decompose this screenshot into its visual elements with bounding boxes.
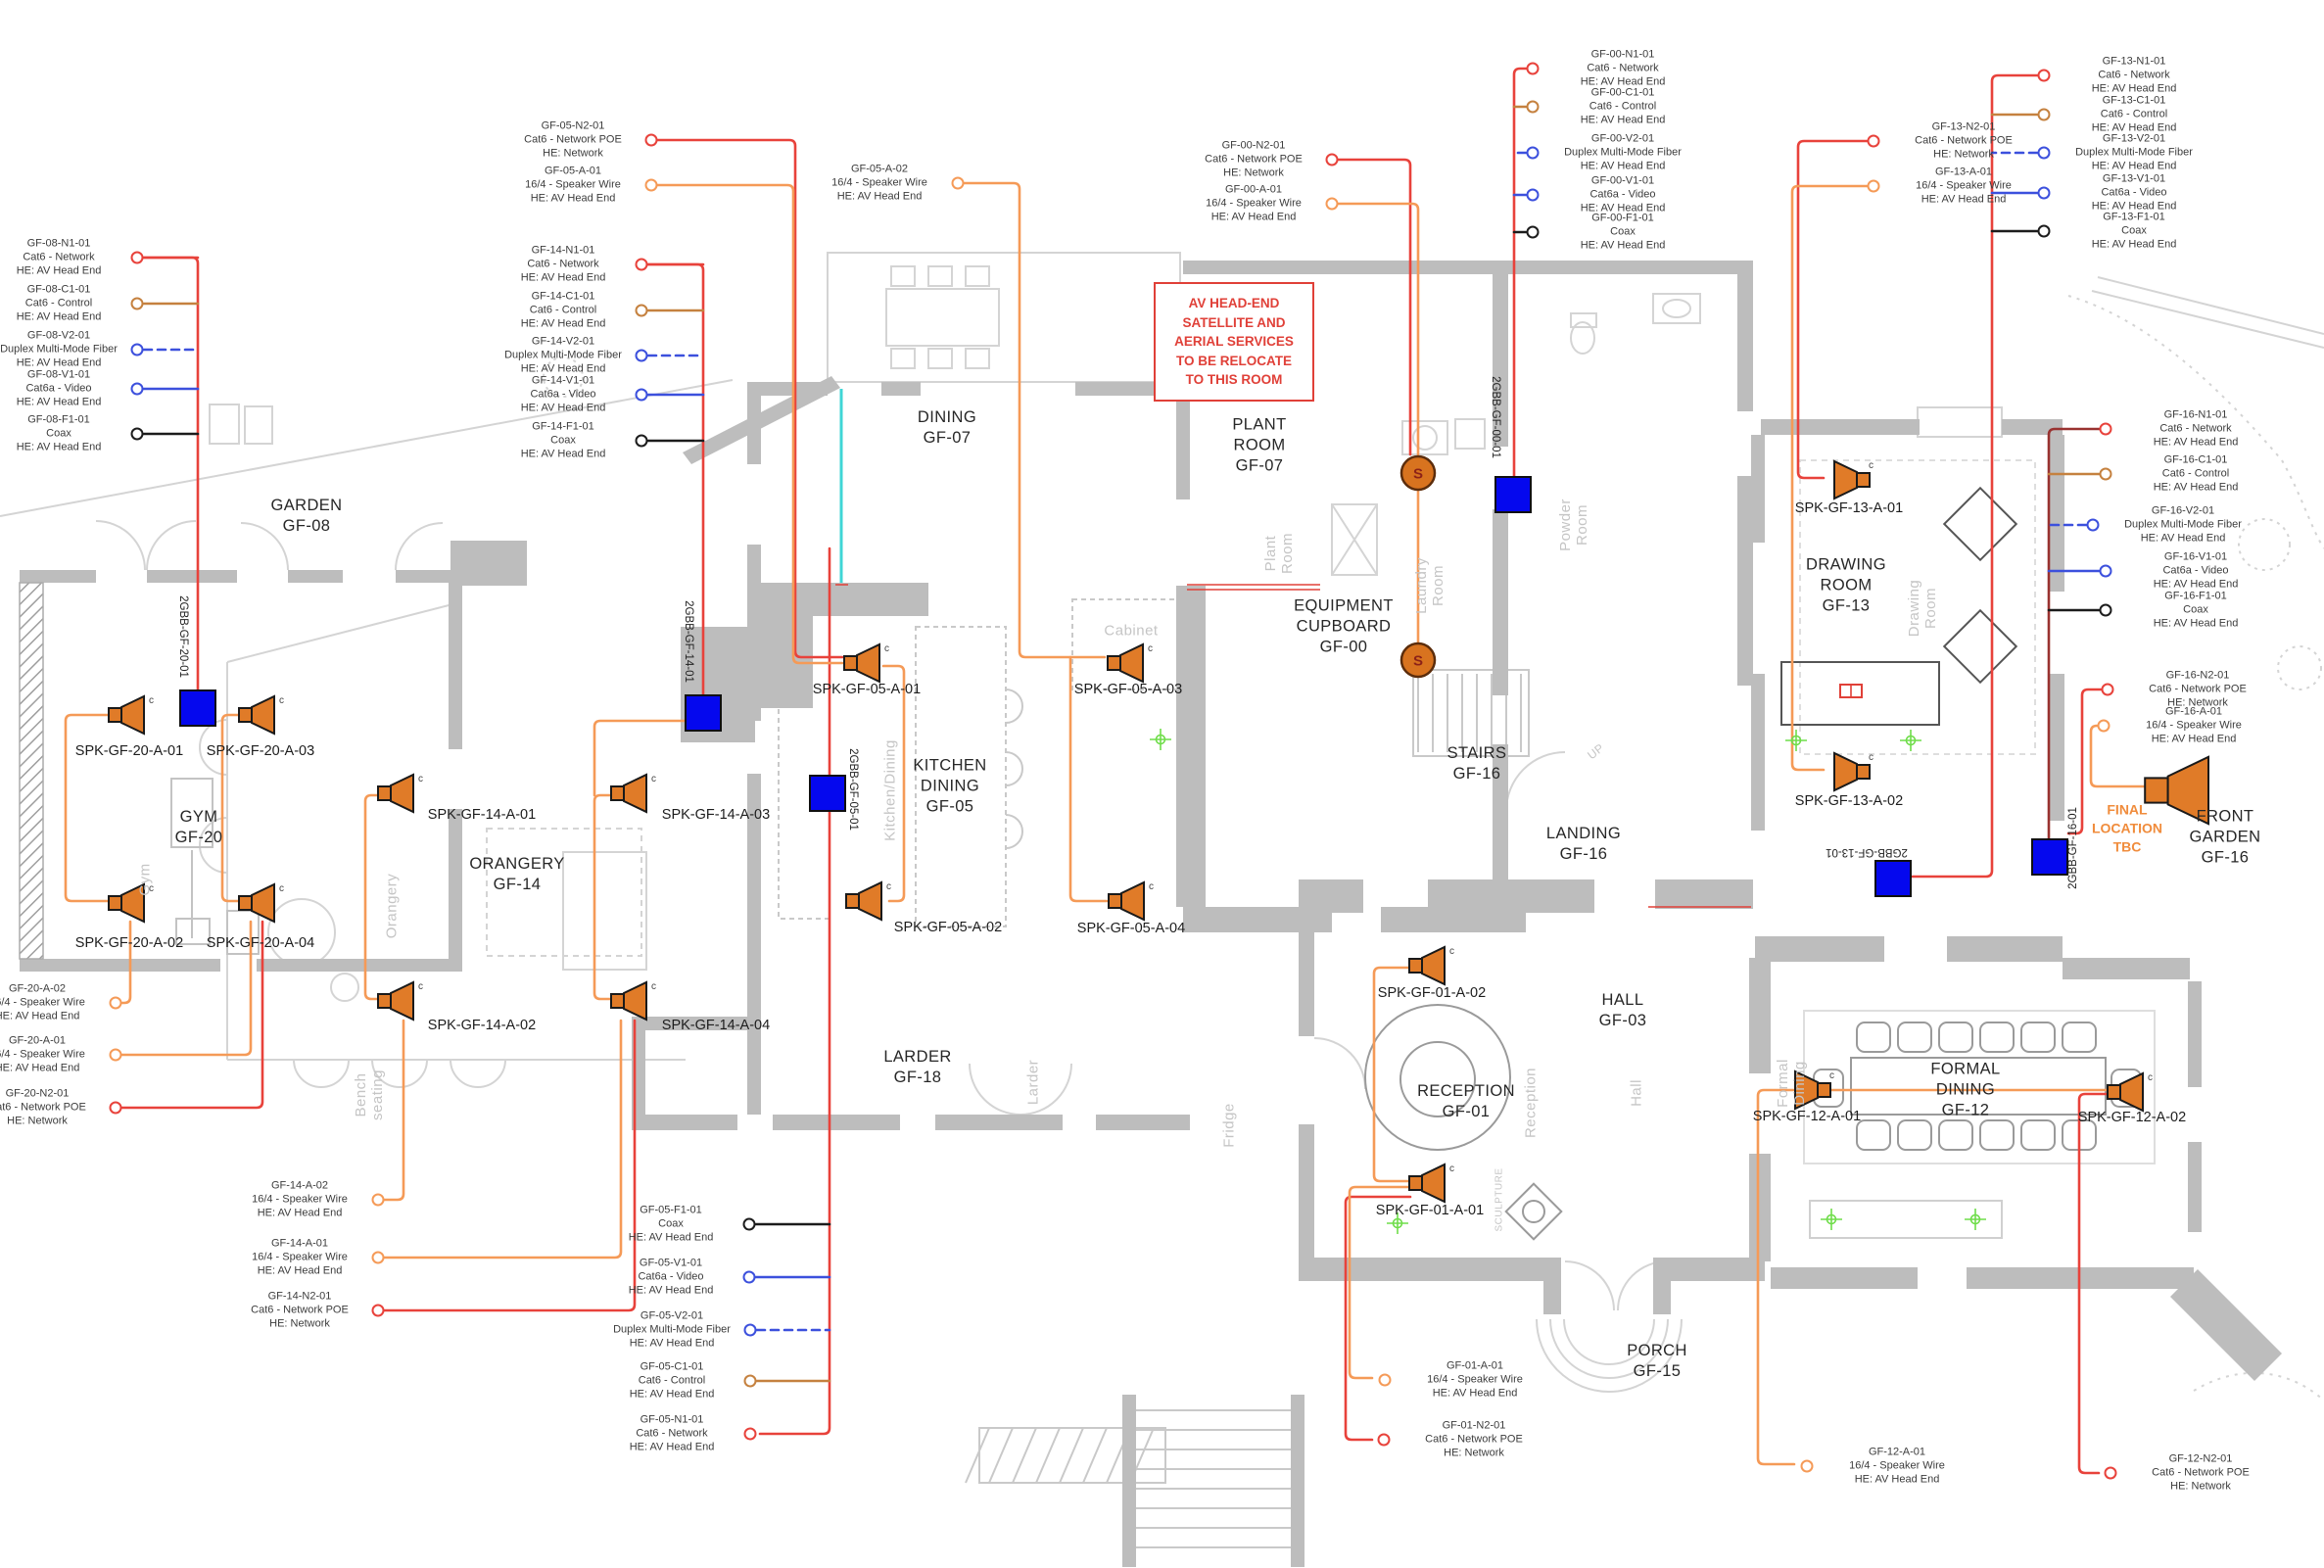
arch-label-line: Kitchen/Dining xyxy=(881,739,898,841)
speaker-label-SPK-GF-12-A-01: SPK-GF-12-A-01 xyxy=(1753,1109,1861,1124)
arch-label: SCULPTURE xyxy=(1494,1167,1505,1231)
speaker-label-text: SPK-GF-20-A-02 xyxy=(75,935,183,951)
room-label-kitchen-dining: KITCHENDININGGF-05 xyxy=(913,755,986,817)
callout-headend: HE: AV Head End xyxy=(593,1284,749,1297)
callout-id: GF-05-N1-01 xyxy=(593,1413,750,1426)
callout-id: GF-12-N2-01 xyxy=(2122,1452,2279,1465)
room-label-line: DINING xyxy=(918,407,976,428)
cable-callout-GF-00-C1-01: GF-00-C1-01Cat6 - ControlHE: AV Head End xyxy=(1544,86,1701,126)
arch-label-line: Fridge xyxy=(1220,1103,1237,1148)
callout-id: GF-16-N1-01 xyxy=(2117,408,2274,421)
backbox-label-2GBB-GF-14-01: 2GBB-GF-14-01 xyxy=(683,600,694,683)
cable-callout-GF-05-N1-01: GF-05-N1-01Cat6 - NetworkHE: AV Head End xyxy=(593,1413,750,1453)
speaker-label-text: SPK-GF-14-A-04 xyxy=(662,1018,770,1033)
cable-terminal-GF-12-N2-01 xyxy=(2105,1467,2117,1480)
callout-cable-type: Cat6a - Video xyxy=(1544,189,1701,202)
arch-label-line: Bench xyxy=(353,1069,369,1120)
cable-terminal-GF-13-N2-01 xyxy=(1868,135,1880,148)
callout-headend: HE: Network xyxy=(2122,1480,2279,1493)
speaker-label-SPK-GF-05-A-03: SPK-GF-05-A-03 xyxy=(1074,682,1182,697)
callout-cable-type: 16/4 - Speaker Wire xyxy=(2115,720,2272,733)
room-label-drawing-room: DRAWINGROOMGF-13 xyxy=(1806,554,1886,616)
arch-label: Benchseating xyxy=(353,1069,387,1120)
callout-cable-type: Coax xyxy=(1544,226,1701,239)
callout-headend: HE: AV Head End xyxy=(221,1264,378,1277)
callout-id: GF-13-C1-01 xyxy=(2056,94,2212,107)
final-location-line: LOCATION xyxy=(2092,820,2162,838)
callout-id: GF-14-A-01 xyxy=(221,1237,378,1250)
speaker-label-SPK-GF-14-A-03: SPK-GF-14-A-03 xyxy=(662,807,770,823)
room-label-line: GF-20 xyxy=(175,828,223,848)
speaker-label-text: SPK-GF-05-A-01 xyxy=(813,682,921,697)
room-label-line: CUPBOARD xyxy=(1294,616,1394,637)
cable-terminal-GF-00-C1-01 xyxy=(1527,101,1540,114)
room-label-line: LANDING xyxy=(1546,824,1621,844)
arch-label-line: Room xyxy=(1430,557,1447,614)
arch-label: PowderRoom xyxy=(1557,499,1591,551)
callout-headend: HE: AV Head End xyxy=(593,1441,750,1453)
speaker-label-SPK-GF-13-A-01: SPK-GF-13-A-01 xyxy=(1795,500,1903,516)
room-label-line: GF-16 xyxy=(1546,844,1621,865)
callout-headend: HE: AV Head End xyxy=(2056,160,2212,172)
callout-id: GF-16-N2-01 xyxy=(2119,669,2276,682)
callout-id: GF-08-C1-01 xyxy=(0,283,137,296)
backbox-label-text: 2GBB-GF-20-01 xyxy=(177,595,189,678)
callout-cable-type: Cat6 - Network POE xyxy=(495,134,651,147)
callout-headend: HE: AV Head End xyxy=(593,1337,750,1350)
cable-callout-GF-05-V1-01: GF-05-V1-01Cat6a - VideoHE: AV Head End xyxy=(593,1257,749,1297)
arch-label-line: Orangery xyxy=(383,874,400,939)
room-label-plant-room: PLANTROOMGF-07 xyxy=(1232,414,1286,476)
cable-terminal-GF-00-F1-01 xyxy=(1527,226,1540,239)
relocation-note-line: AV HEAD-END xyxy=(1160,294,1308,313)
callout-headend: HE: AV Head End xyxy=(801,190,958,203)
arch-label-line: Gym xyxy=(136,863,153,895)
callout-cable-type: Cat6a - Video xyxy=(485,389,641,402)
arch-label-line: Room xyxy=(1922,580,1939,638)
cable-callout-GF-13-N1-01: GF-13-N1-01Cat6 - NetworkHE: AV Head End xyxy=(2056,55,2212,95)
room-label-line: STAIRS xyxy=(1447,743,1507,764)
callout-headend: HE: AV Head End xyxy=(0,1010,116,1022)
cable-terminal-GF-01-N2-01 xyxy=(1378,1434,1391,1447)
callout-headend: HE: AV Head End xyxy=(485,402,641,414)
cable-terminal-GF-16-F1-01 xyxy=(2100,604,2112,617)
arch-label: Cabinet xyxy=(1104,622,1158,639)
callout-id: GF-13-V2-01 xyxy=(2056,132,2212,145)
speaker-label-text: SPK-GF-20-A-01 xyxy=(75,743,183,759)
speaker-label-SPK-GF-20-A-02: SPK-GF-20-A-02 xyxy=(75,935,183,951)
callout-headend: HE: AV Head End xyxy=(0,1062,116,1074)
cable-callout-GF-01-A-01: GF-01-A-0116/4 - Speaker WireHE: AV Head… xyxy=(1397,1359,1553,1400)
cable-callout-GF-16-N1-01: GF-16-N1-01Cat6 - NetworkHE: AV Head End xyxy=(2117,408,2274,449)
speaker-label-text: SPK-GF-05-A-03 xyxy=(1074,682,1182,697)
callout-cable-type: Cat6 - Network POE xyxy=(221,1305,378,1317)
relocation-note-line: TO BE RELOCATE xyxy=(1160,352,1308,371)
room-label-line: ORANGERY xyxy=(469,854,564,875)
callout-cable-type: Cat6 - Control xyxy=(485,305,641,317)
arch-label: Fridge xyxy=(1220,1103,1237,1148)
cable-callout-GF-08-V1-01: GF-08-V1-01Cat6a - VideoHE: AV Head End xyxy=(0,368,137,408)
backbox-label-text: 2GBB-GF-05-01 xyxy=(847,748,859,831)
arch-label: DrawingRoom xyxy=(1906,580,1940,638)
cable-callout-GF-20-N2-01: GF-20-N2-01Cat6 - Network POEHE: Network xyxy=(0,1087,116,1127)
cable-callout-GF-08-F1-01: GF-08-F1-01CoaxHE: AV Head End xyxy=(0,413,137,453)
callout-id: GF-00-N1-01 xyxy=(1544,48,1701,61)
callout-headend: HE: Network xyxy=(1885,148,2042,161)
callout-headend: HE: AV Head End xyxy=(485,271,641,284)
backbox-label-2GBB-GF-20-01: 2GBB-GF-20-01 xyxy=(177,595,189,678)
callout-cable-type: Cat6a - Video xyxy=(0,383,137,396)
room-label-line: GF-12 xyxy=(1930,1101,2000,1121)
speaker-label-text: SPK-GF-14-A-01 xyxy=(428,807,536,823)
room-label-line: GF-05 xyxy=(913,797,986,818)
room-label-orangery: ORANGERYGF-14 xyxy=(469,854,564,895)
room-label-garden: GARDENGF-08 xyxy=(271,496,343,537)
room-label-line: GF-16 xyxy=(2190,848,2261,869)
cable-callout-GF-13-V2-01: GF-13-V2-01Duplex Multi-Mode FiberHE: AV… xyxy=(2056,132,2212,172)
callout-headend: HE: AV Head End xyxy=(593,1388,750,1401)
callout-cable-type: Cat6 - Network xyxy=(1544,63,1701,75)
callout-cable-type: Cat6 - Control xyxy=(593,1375,750,1388)
callout-id: GF-16-F1-01 xyxy=(2117,590,2274,602)
cable-terminal-GF-13-F1-01 xyxy=(2038,225,2051,238)
speaker-label-SPK-GF-12-A-02: SPK-GF-12-A-02 xyxy=(2078,1110,2186,1125)
callout-cable-type: Coax xyxy=(593,1218,749,1231)
callout-cable-type: 16/4 - Speaker Wire xyxy=(0,1049,116,1062)
cable-terminal-GF-16-A-01 xyxy=(2098,720,2111,733)
callout-id: GF-05-C1-01 xyxy=(593,1360,750,1373)
cable-terminal-GF-12-A-01 xyxy=(1801,1460,1814,1473)
speaker-label-text: SPK-GF-20-A-04 xyxy=(207,935,314,951)
callout-cable-type: Cat6 - Network xyxy=(0,252,137,264)
backbox-label-text: 2GBB-GF-14-01 xyxy=(683,600,694,683)
room-label-front-garden: FRONTGARDENGF-16 xyxy=(2190,806,2261,868)
room-label-line: RECEPTION xyxy=(1417,1081,1515,1102)
arch-label-line: Cabinet xyxy=(1104,622,1158,639)
callout-cable-type: Duplex Multi-Mode Fiber xyxy=(0,344,137,356)
arch-label-line: Powder xyxy=(1557,499,1574,551)
room-label-formal-dining: FORMALDININGGF-12 xyxy=(1930,1059,2000,1120)
callout-headend: HE: AV Head End xyxy=(1819,1473,1975,1486)
callout-id: GF-14-V2-01 xyxy=(485,335,641,348)
cable-callout-GF-13-F1-01: GF-13-F1-01CoaxHE: AV Head End xyxy=(2056,211,2212,251)
callout-id: GF-01-N2-01 xyxy=(1396,1419,1552,1432)
speaker-label-SPK-GF-20-A-04: SPK-GF-20-A-04 xyxy=(207,935,314,951)
callout-cable-type: 16/4 - Speaker Wire xyxy=(1885,180,2042,193)
room-label-line: GF-15 xyxy=(1627,1361,1687,1382)
callout-id: GF-00-F1-01 xyxy=(1544,212,1701,224)
cable-callout-GF-14-V2-01: GF-14-V2-01Duplex Multi-Mode FiberHE: AV… xyxy=(485,335,641,375)
room-label-line: FORMAL xyxy=(1930,1059,2000,1079)
callout-id: GF-01-A-01 xyxy=(1397,1359,1553,1372)
room-label-line: GF-03 xyxy=(1599,1011,1647,1031)
callout-cable-type: Duplex Multi-Mode Fiber xyxy=(1544,147,1701,160)
callout-headend: HE: AV Head End xyxy=(2105,532,2261,545)
speaker-label-SPK-GF-20-A-03: SPK-GF-20-A-03 xyxy=(207,743,314,759)
cable-terminal-GF-13-V1-01 xyxy=(2038,187,2051,200)
callout-id: GF-05-F1-01 xyxy=(593,1204,749,1216)
callout-id: GF-13-N2-01 xyxy=(1885,120,2042,133)
arch-label: Larder xyxy=(1024,1060,1041,1105)
callout-headend: HE: AV Head End xyxy=(1544,160,1701,172)
callout-id: GF-13-N1-01 xyxy=(2056,55,2212,68)
cable-terminal-GF-16-N2-01 xyxy=(2102,684,2114,696)
room-label-line: HALL xyxy=(1599,990,1647,1011)
speaker-label-text: SPK-GF-05-A-04 xyxy=(1077,921,1185,936)
callout-id: GF-08-V2-01 xyxy=(0,329,137,342)
speaker-label-text: SPK-GF-14-A-02 xyxy=(428,1018,536,1033)
callout-cable-type: Duplex Multi-Mode Fiber xyxy=(593,1324,750,1337)
cable-terminal-GF-16-N1-01 xyxy=(2100,423,2112,436)
callout-id: GF-05-V2-01 xyxy=(593,1309,750,1322)
callout-cable-type: 16/4 - Speaker Wire xyxy=(1175,198,1332,211)
cable-callout-GF-14-A-02: GF-14-A-0216/4 - Speaker WireHE: AV Head… xyxy=(221,1179,378,1219)
callout-cable-type: 16/4 - Speaker Wire xyxy=(221,1194,378,1207)
room-label-line: GF-14 xyxy=(469,875,564,895)
arch-label: Kitchen/Dining xyxy=(881,739,898,841)
callout-headend: HE: Network xyxy=(495,147,651,160)
cable-terminal-GF-00-V2-01 xyxy=(1527,147,1540,160)
callout-id: GF-14-N1-01 xyxy=(485,244,641,257)
room-label-line: GF-07 xyxy=(1232,456,1286,477)
cable-callout-GF-16-N2-01: GF-16-N2-01Cat6 - Network POEHE: Network xyxy=(2119,669,2276,709)
callout-cable-type: Coax xyxy=(2117,604,2274,617)
final-location-note: FINALLOCATIONTBC xyxy=(2092,801,2162,857)
callout-cable-type: Coax xyxy=(485,435,641,448)
arch-label-line: Laundry xyxy=(1413,557,1430,614)
callout-headend: HE: AV Head End xyxy=(2117,436,2274,449)
backbox-label-2GBB-GF-05-01: 2GBB-GF-05-01 xyxy=(847,748,859,831)
backbox-label-2GBB-GF-00-01: 2GBB-GF-00-01 xyxy=(1490,376,1501,458)
cable-callout-GF-13-N2-01: GF-13-N2-01Cat6 - Network POEHE: Network xyxy=(1885,120,2042,161)
cable-callout-GF-16-V2-01: GF-16-V2-01Duplex Multi-Mode FiberHE: AV… xyxy=(2105,504,2261,545)
arch-label-line: Drawing xyxy=(1906,580,1922,638)
cable-callout-GF-05-V2-01: GF-05-V2-01Duplex Multi-Mode FiberHE: AV… xyxy=(593,1309,750,1350)
cable-callout-GF-14-C1-01: GF-14-C1-01Cat6 - ControlHE: AV Head End xyxy=(485,290,641,330)
cable-callout-GF-14-A-01: GF-14-A-0116/4 - Speaker WireHE: AV Head… xyxy=(221,1237,378,1277)
room-label-line: GF-07 xyxy=(918,428,976,449)
cable-terminal-GF-00-N1-01 xyxy=(1527,63,1540,75)
speaker-label-text: SPK-GF-14-A-03 xyxy=(662,807,770,823)
speaker-label-text: SPK-GF-13-A-02 xyxy=(1795,793,1903,809)
room-label-hall: HALLGF-03 xyxy=(1599,990,1647,1031)
room-label-line: GARDEN xyxy=(2190,827,2261,847)
speaker-label-SPK-GF-01-A-01: SPK-GF-01-A-01 xyxy=(1376,1203,1484,1218)
arch-label: Gym xyxy=(136,863,153,895)
callout-headend: HE: AV Head End xyxy=(1175,211,1332,223)
cable-terminal-GF-13-N1-01 xyxy=(2038,70,2051,82)
callout-cable-type: Cat6 - Network xyxy=(2117,423,2274,436)
callout-id: GF-20-A-02 xyxy=(0,982,116,995)
speaker-label-text: SPK-GF-12-A-02 xyxy=(2078,1110,2186,1125)
callout-id: GF-14-N2-01 xyxy=(221,1290,378,1303)
arch-label-line: Room xyxy=(1279,533,1296,574)
callout-cable-type: 16/4 - Speaker Wire xyxy=(495,179,651,192)
callout-cable-type: 16/4 - Speaker Wire xyxy=(801,177,958,190)
cable-terminal-GF-13-A-01 xyxy=(1868,180,1880,193)
callout-id: GF-05-N2-01 xyxy=(495,119,651,132)
cable-callout-GF-12-N2-01: GF-12-N2-01Cat6 - Network POEHE: Network xyxy=(2122,1452,2279,1493)
callout-id: GF-05-V1-01 xyxy=(593,1257,749,1269)
callout-cable-type: Cat6a - Video xyxy=(2056,187,2212,200)
backbox-label-2GBB-GF-13-01: 2GBB-GF-13-01 xyxy=(1826,846,1908,858)
room-label-line: EQUIPMENT xyxy=(1294,595,1394,616)
cable-callout-GF-05-N2-01: GF-05-N2-01Cat6 - Network POEHE: Network xyxy=(495,119,651,160)
callout-cable-type: 16/4 - Speaker Wire xyxy=(1397,1374,1553,1387)
room-label-line: FRONT xyxy=(2190,806,2261,827)
speaker-label-SPK-GF-14-A-02: SPK-GF-14-A-02 xyxy=(428,1018,536,1033)
callout-headend: HE: Network xyxy=(221,1317,378,1330)
cable-callout-GF-12-A-01: GF-12-A-0116/4 - Speaker WireHE: AV Head… xyxy=(1819,1446,1975,1486)
callout-headend: HE: AV Head End xyxy=(0,310,137,323)
room-label-gym: GYMGF-20 xyxy=(175,807,223,848)
cable-callout-GF-05-C1-01: GF-05-C1-01Cat6 - ControlHE: AV Head End xyxy=(593,1360,750,1401)
callout-headend: HE: AV Head End xyxy=(2115,733,2272,745)
callout-cable-type: Cat6 - Network POE xyxy=(2122,1467,2279,1480)
cable-terminal-GF-16-V2-01 xyxy=(2087,519,2100,532)
speaker-label-SPK-GF-05-A-04: SPK-GF-05-A-04 xyxy=(1077,921,1185,936)
cable-callout-GF-08-V2-01: GF-08-V2-01Duplex Multi-Mode FiberHE: AV… xyxy=(0,329,137,369)
callout-cable-type: Duplex Multi-Mode Fiber xyxy=(485,350,641,362)
callout-cable-type: Cat6 - Network xyxy=(2056,70,2212,82)
callout-cable-type: Cat6 - Network POE xyxy=(1885,135,2042,148)
arch-label: Reception xyxy=(1522,1068,1539,1138)
cable-callout-GF-16-C1-01: GF-16-C1-01Cat6 - ControlHE: AV Head End xyxy=(2117,453,2274,494)
callout-headend: HE: AV Head End xyxy=(0,396,137,408)
arch-label-line: seating xyxy=(369,1069,386,1120)
callout-headend: HE: AV Head End xyxy=(221,1207,378,1219)
speaker-label-SPK-GF-13-A-02: SPK-GF-13-A-02 xyxy=(1795,793,1903,809)
cable-callout-GF-16-A-01: GF-16-A-0116/4 - Speaker WireHE: AV Head… xyxy=(2115,705,2272,745)
arch-label-line: Plant xyxy=(1262,533,1279,574)
callout-id: GF-16-V1-01 xyxy=(2117,550,2274,563)
room-label-line: PLANT xyxy=(1232,414,1286,435)
room-label-line: GARDEN xyxy=(271,496,343,516)
arch-label-line: Room xyxy=(1574,499,1590,551)
arch-label-line: Hall xyxy=(1628,1079,1644,1107)
cable-callout-GF-20-A-02: GF-20-A-0216/4 - Speaker WireHE: AV Head… xyxy=(0,982,116,1022)
arch-label-line: SCULPTURE xyxy=(1494,1167,1505,1231)
labels-layer: AV HEAD-ENDSATELLITE ANDAERIAL SERVICEST… xyxy=(0,0,2324,1568)
arch-label: Hall xyxy=(1628,1079,1644,1107)
cable-callout-GF-20-A-01: GF-20-A-0116/4 - Speaker WireHE: AV Head… xyxy=(0,1034,116,1074)
arch-label-line: Dining xyxy=(1791,1059,1808,1108)
callout-cable-type: Duplex Multi-Mode Fiber xyxy=(2105,519,2261,532)
callout-cable-type: Cat6 - Network POE xyxy=(0,1102,116,1115)
callout-cable-type: Coax xyxy=(2056,225,2212,238)
room-label-line: ROOM xyxy=(1232,435,1286,455)
room-label-line: PORCH xyxy=(1627,1341,1687,1361)
callout-cable-type: Cat6a - Video xyxy=(593,1271,749,1284)
relocation-note: AV HEAD-ENDSATELLITE ANDAERIAL SERVICEST… xyxy=(1154,282,1314,402)
cable-callout-GF-00-F1-01: GF-00-F1-01CoaxHE: AV Head End xyxy=(1544,212,1701,252)
callout-cable-type: Duplex Multi-Mode Fiber xyxy=(2056,147,2212,160)
callout-headend: HE: Network xyxy=(1396,1447,1552,1459)
room-label-line: ROOM xyxy=(1806,575,1886,595)
callout-headend: HE: AV Head End xyxy=(0,264,137,277)
callout-id: GF-20-A-01 xyxy=(0,1034,116,1047)
speaker-label-SPK-GF-01-A-02: SPK-GF-01-A-02 xyxy=(1378,985,1486,1001)
callout-id: GF-00-A-01 xyxy=(1175,183,1332,196)
cable-callout-GF-05-A-01: GF-05-A-0116/4 - Speaker WireHE: AV Head… xyxy=(495,165,651,205)
room-label-dining: DININGGF-07 xyxy=(918,407,976,449)
relocation-note-line: TO THIS ROOM xyxy=(1160,370,1308,390)
arch-label: FormalDining xyxy=(1775,1059,1809,1108)
callout-cable-type: Cat6 - Control xyxy=(0,298,137,310)
callout-cable-type: Cat6 - Control xyxy=(2056,109,2212,121)
callout-headend: HE: AV Head End xyxy=(1544,114,1701,126)
room-label-porch: PORCHGF-15 xyxy=(1627,1341,1687,1382)
room-label-line: GYM xyxy=(175,807,223,828)
callout-headend: HE: AV Head End xyxy=(0,441,137,453)
backbox-label-text: 2GBB-GF-00-01 xyxy=(1490,376,1501,458)
final-location-line: TBC xyxy=(2092,837,2162,856)
cable-callout-GF-05-F1-01: GF-05-F1-01CoaxHE: AV Head End xyxy=(593,1204,749,1244)
callout-headend: HE: AV Head End xyxy=(1885,193,2042,206)
speaker-label-SPK-GF-05-A-02: SPK-GF-05-A-02 xyxy=(894,920,1002,935)
speaker-label-text: SPK-GF-05-A-02 xyxy=(894,920,1002,935)
room-label-larder: LARDERGF-18 xyxy=(883,1047,951,1088)
cable-callout-GF-14-F1-01: GF-14-F1-01CoaxHE: AV Head End xyxy=(485,420,641,460)
relocation-note-line: AERIAL SERVICES xyxy=(1160,332,1308,352)
callout-id: GF-13-A-01 xyxy=(1885,166,2042,178)
speaker-label-text: SPK-GF-20-A-03 xyxy=(207,743,314,759)
room-label-line: GF-13 xyxy=(1806,596,1886,617)
cable-callout-GF-00-A-01: GF-00-A-0116/4 - Speaker WireHE: AV Head… xyxy=(1175,183,1332,223)
callout-id: GF-08-F1-01 xyxy=(0,413,137,426)
callout-headend: HE: AV Head End xyxy=(1397,1387,1553,1400)
cable-terminal-GF-00-V1-01 xyxy=(1527,189,1540,202)
callout-id: GF-05-A-01 xyxy=(495,165,651,177)
cable-callout-GF-01-N2-01: GF-01-N2-01Cat6 - Network POEHE: Network xyxy=(1396,1419,1552,1459)
callout-cable-type: Cat6 - Network POE xyxy=(1396,1434,1552,1447)
callout-id: GF-05-A-02 xyxy=(801,163,958,175)
room-label-stairs: STAIRSGF-16 xyxy=(1447,743,1507,784)
callout-cable-type: Cat6 - Network POE xyxy=(2119,684,2276,696)
callout-cable-type: Cat6 - Network POE xyxy=(1175,154,1332,166)
cable-terminal-GF-01-A-01 xyxy=(1379,1374,1392,1387)
callout-cable-type: Cat6 - Control xyxy=(1544,101,1701,114)
callout-id: GF-16-A-01 xyxy=(2115,705,2272,718)
callout-id: GF-00-V2-01 xyxy=(1544,132,1701,145)
room-label-line: GF-16 xyxy=(1447,764,1507,784)
callout-headend: HE: AV Head End xyxy=(495,192,651,205)
backbox-label-text: 2GBB-GF-16-01 xyxy=(2067,807,2079,889)
callout-id: GF-08-V1-01 xyxy=(0,368,137,381)
cable-callout-GF-13-V1-01: GF-13-V1-01Cat6a - VideoHE: AV Head End xyxy=(2056,172,2212,213)
cable-callout-GF-05-A-02: GF-05-A-0216/4 - Speaker WireHE: AV Head… xyxy=(801,163,958,203)
callout-headend: HE: AV Head End xyxy=(593,1231,749,1244)
room-label-line: DINING xyxy=(913,776,986,796)
cable-terminal-GF-13-V2-01 xyxy=(2038,147,2051,160)
room-label-equipment-cupboard: EQUIPMENTCUPBOARDGF-00 xyxy=(1294,595,1394,657)
callout-cable-type: Coax xyxy=(0,428,137,441)
cable-callout-GF-14-N1-01: GF-14-N1-01Cat6 - NetworkHE: AV Head End xyxy=(485,244,641,284)
speaker-label-SPK-GF-20-A-01: SPK-GF-20-A-01 xyxy=(75,743,183,759)
final-location-line: FINAL xyxy=(2092,801,2162,820)
speaker-label-SPK-GF-14-A-01: SPK-GF-14-A-01 xyxy=(428,807,536,823)
room-label-reception: RECEPTIONGF-01 xyxy=(1417,1081,1515,1122)
callout-id: GF-13-V1-01 xyxy=(2056,172,2212,185)
room-label-line: GF-18 xyxy=(883,1068,951,1088)
relocation-note-line: SATELLITE AND xyxy=(1160,313,1308,333)
callout-id: GF-14-C1-01 xyxy=(485,290,641,303)
floorplan-canvas: ccccccccccccccccccSS AV HEAD-ENDSATELLIT… xyxy=(0,0,2324,1568)
speaker-label-text: SPK-GF-12-A-01 xyxy=(1753,1109,1861,1124)
cable-callout-GF-13-A-01: GF-13-A-0116/4 - Speaker WireHE: AV Head… xyxy=(1885,166,2042,206)
cable-callout-GF-14-V1-01: GF-14-V1-01Cat6a - VideoHE: AV Head End xyxy=(485,374,641,414)
callout-cable-type: 16/4 - Speaker Wire xyxy=(0,997,116,1010)
